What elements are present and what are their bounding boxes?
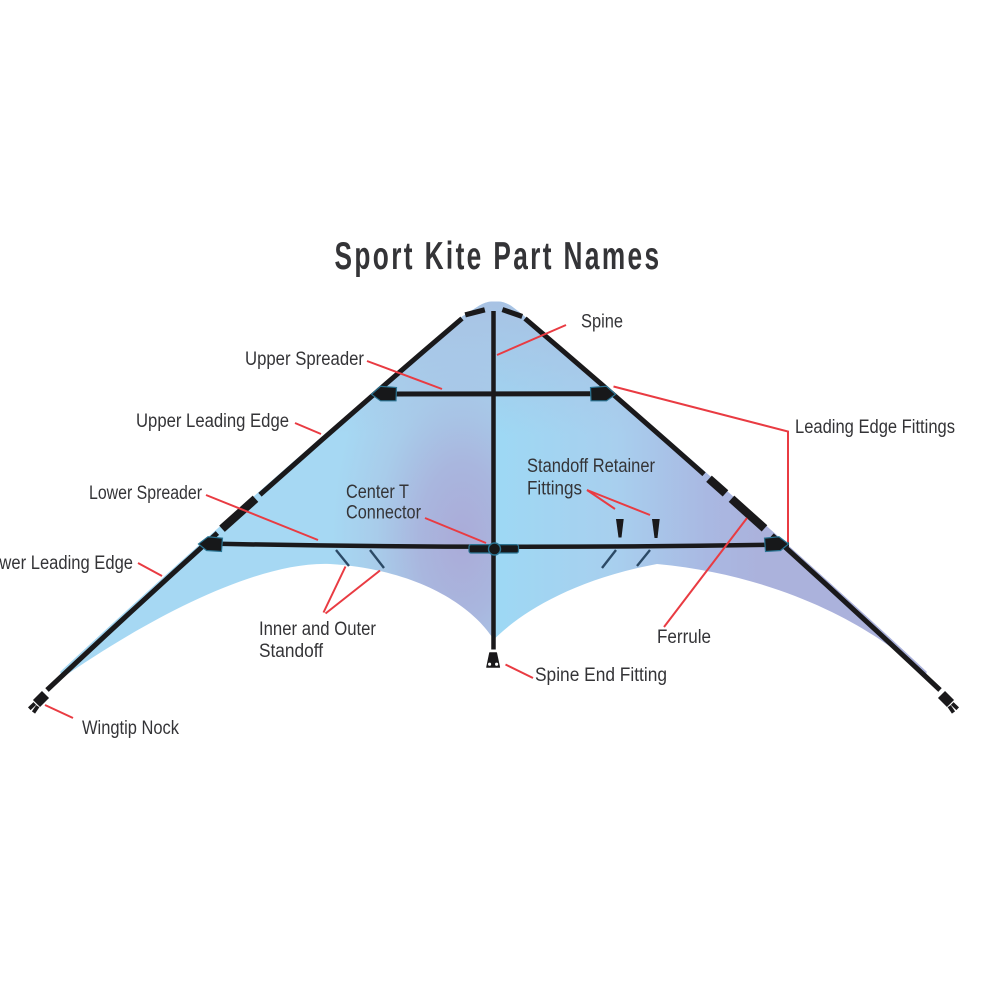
svg-text:Lower Spreader: Lower Spreader bbox=[89, 483, 203, 504]
svg-text:Standoff Retainer: Standoff Retainer bbox=[527, 456, 656, 477]
svg-text:Standoff: Standoff bbox=[259, 641, 324, 662]
svg-text:Inner and Outer: Inner and Outer bbox=[259, 619, 377, 640]
svg-text:Spine End Fitting: Spine End Fitting bbox=[535, 665, 667, 686]
svg-text:Upper Spreader: Upper Spreader bbox=[245, 349, 365, 370]
svg-text:Sport Kite Part Names: Sport Kite Part Names bbox=[335, 235, 662, 278]
svg-text:Upper Leading Edge: Upper Leading Edge bbox=[136, 411, 289, 432]
svg-text:Spine: Spine bbox=[581, 312, 623, 333]
svg-text:Connector: Connector bbox=[346, 503, 422, 524]
svg-text:Wingtip Nock: Wingtip Nock bbox=[82, 718, 179, 739]
svg-text:Center T: Center T bbox=[346, 482, 409, 503]
svg-text:Ferrule: Ferrule bbox=[657, 627, 711, 648]
svg-text:Fittings: Fittings bbox=[527, 479, 582, 500]
svg-text:Leading Edge Fittings: Leading Edge Fittings bbox=[795, 417, 955, 438]
svg-text:Lower Leading Edge: Lower Leading Edge bbox=[0, 553, 133, 574]
